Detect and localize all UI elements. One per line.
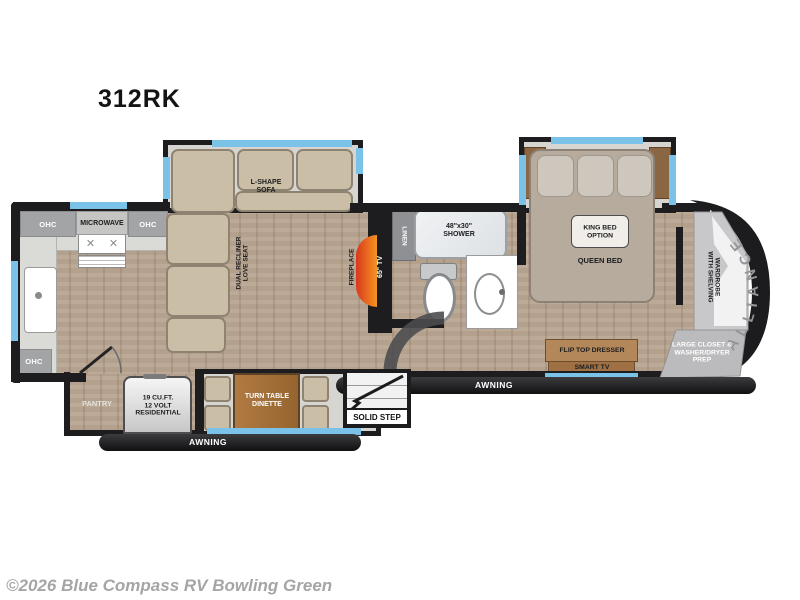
watermark: ©2026 Blue Compass RV Bowling Green: [6, 576, 332, 596]
floorplan-canvas: ✕✕ OHC OHC OHC: [0, 0, 800, 600]
label-pantry: PANTRY: [82, 400, 112, 408]
label-shower: 48"x30" SHOWER: [443, 223, 475, 239]
label-linen: LINEN: [400, 226, 407, 246]
label-ohc-side: OHC: [25, 292, 33, 308]
label-loveseat: DUAL RECLINER LOVE SEAT: [236, 237, 251, 290]
label-microwave: MICROWAVE: [80, 220, 123, 228]
label-dresser: FLIP TOP DRESSER: [560, 347, 625, 355]
label-awning-right: AWNING: [475, 381, 513, 391]
label-closet: LARGE CLOSET & WASHER/DRYER PREP: [672, 342, 732, 365]
awning-bar-left: [99, 434, 361, 451]
step-diagonal: [347, 373, 407, 413]
page-title: 312RK: [98, 85, 181, 114]
label-tv: 65" TV: [377, 256, 385, 278]
solid-step-label: SOLID STEP: [347, 408, 407, 424]
label-refrigerator: 19 CU.FT. 12 VOLT RESIDENTIAL: [135, 395, 180, 418]
label-king-option: KING BED OPTION: [583, 224, 616, 239]
label-dinette: TURN TABLE DINETTE: [245, 393, 289, 409]
label-queen-bed: QUEEN BED: [578, 257, 623, 265]
label-awning-left: AWNING: [189, 438, 227, 448]
pantry-door-arc: [112, 347, 121, 373]
label-smart-tv: SMART TV: [575, 364, 610, 372]
entry-door-swing-arc: [390, 318, 444, 372]
label-fireplace: FIREPLACE: [348, 249, 355, 286]
label-sofa: L-SHAPE SOFA: [251, 179, 282, 195]
pantry-door-leaf: [80, 347, 112, 373]
solid-step: SOLID STEP: [343, 369, 411, 428]
label-wardrobe: WARDROBE WITH SHELVING: [706, 251, 721, 302]
